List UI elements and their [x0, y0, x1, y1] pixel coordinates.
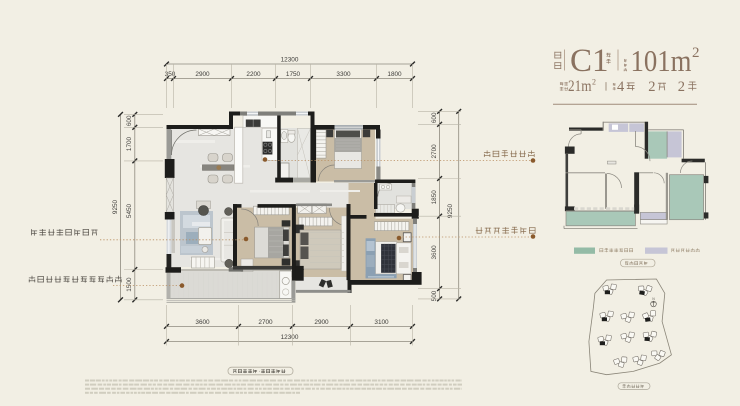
svg-text:2: 2	[648, 79, 655, 95]
svg-text:N: N	[652, 297, 655, 301]
svg-text:2700: 2700	[431, 144, 438, 159]
svg-text:1700: 1700	[126, 136, 133, 151]
svg-text:12300: 12300	[281, 57, 299, 64]
svg-text:12300: 12300	[281, 334, 299, 341]
svg-text:3600: 3600	[195, 319, 210, 326]
svg-text:1500: 1500	[126, 277, 133, 292]
svg-text:1750: 1750	[286, 71, 301, 78]
svg-text:21m: 21m	[568, 78, 592, 95]
svg-text:9250: 9250	[112, 199, 119, 214]
svg-text:2900: 2900	[314, 319, 329, 326]
svg-text:500: 500	[431, 290, 438, 301]
svg-text:3300: 3300	[336, 71, 351, 78]
svg-text:5450: 5450	[126, 203, 133, 218]
svg-text:3100: 3100	[374, 319, 389, 326]
svg-text:2700: 2700	[258, 319, 273, 326]
svg-text:4: 4	[617, 79, 625, 95]
svg-text:C1: C1	[570, 43, 609, 79]
svg-text:600: 600	[431, 112, 438, 123]
svg-text:1800: 1800	[387, 71, 402, 78]
svg-text:2: 2	[678, 79, 685, 95]
svg-text:2200: 2200	[246, 71, 261, 78]
svg-text:101m: 101m	[631, 43, 692, 78]
svg-text:1850: 1850	[431, 190, 438, 205]
svg-text:600: 600	[126, 115, 133, 126]
svg-text:2: 2	[592, 78, 596, 87]
svg-text:2: 2	[692, 45, 700, 61]
svg-text:2900: 2900	[195, 71, 210, 78]
svg-text:3600: 3600	[431, 245, 438, 260]
